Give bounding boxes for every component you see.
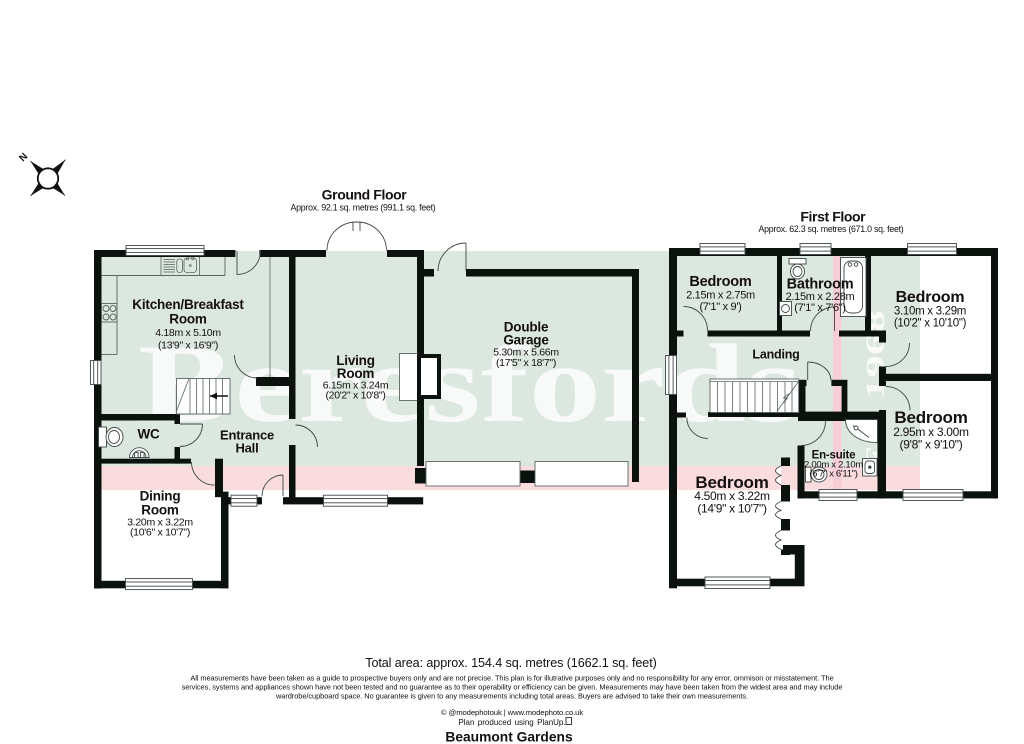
- svg-text:Landing: Landing: [752, 348, 799, 362]
- svg-text:(17'5" x 18'7"): (17'5" x 18'7"): [496, 357, 556, 369]
- svg-text:Approx. 62.3 sq. metres (671.0: Approx. 62.3 sq. metres (671.0 sq. feet): [758, 224, 903, 234]
- svg-text:Ground Floor: Ground Floor: [322, 187, 408, 203]
- svg-text:Room: Room: [169, 312, 207, 327]
- svg-text:Bedroom: Bedroom: [689, 274, 751, 290]
- svg-text:First Floor: First Floor: [800, 209, 866, 225]
- svg-text:(7'1" x 9'): (7'1" x 9'): [699, 301, 741, 313]
- svg-text:Hall: Hall: [235, 441, 258, 456]
- svg-text:Dining: Dining: [140, 489, 181, 504]
- svg-text:(13'9" x 16'9"): (13'9" x 16'9"): [158, 340, 218, 352]
- svg-text:(10'6" x 10'7"): (10'6" x 10'7"): [130, 527, 190, 539]
- svg-text:3.10m x 3.29m: 3.10m x 3.29m: [894, 306, 966, 318]
- svg-text:(14'9" x 10'7"): (14'9" x 10'7"): [697, 502, 767, 516]
- svg-text:4.18m x 5.10m: 4.18m x 5.10m: [155, 327, 221, 339]
- svg-text:(7'1" x 7'6"): (7'1" x 7'6"): [794, 302, 846, 314]
- svg-text:Kitchen/Breakfast: Kitchen/Breakfast: [132, 297, 244, 312]
- svg-text:(6'7" x 6'11"): (6'7" x 6'11"): [809, 469, 857, 480]
- svg-text:Plan produced using PlanUp.: Plan produced using PlanUp.: [458, 718, 565, 727]
- svg-text:Room: Room: [141, 503, 179, 518]
- svg-text:Beaumont Gardens: Beaumont Gardens: [445, 730, 573, 744]
- svg-text:(9'8" x 9'10"): (9'8" x 9'10"): [900, 438, 963, 452]
- svg-text:(10'2" x 10'10"): (10'2" x 10'10"): [894, 318, 967, 330]
- svg-text:wardrobe/cupboard space. No gu: wardrobe/cupboard space. No guarantee is…: [275, 692, 748, 701]
- svg-text:© @modephotouk | www.modephoto: © @modephotouk | www.modephoto.co.uk: [441, 708, 583, 717]
- svg-text:Garage: Garage: [503, 333, 549, 348]
- svg-text:WC: WC: [137, 427, 160, 442]
- svg-text:Approx. 92.1 sq. metres (991.1: Approx. 92.1 sq. metres (991.1 sq. feet): [290, 203, 435, 213]
- svg-text:2.15m x 2.75m: 2.15m x 2.75m: [686, 290, 755, 302]
- svg-text:services, systems and applianc: services, systems and appliances shown h…: [182, 683, 843, 692]
- svg-text:Bedroom: Bedroom: [896, 289, 965, 306]
- svg-text:(20'2" x 10'8"): (20'2" x 10'8"): [325, 390, 385, 402]
- svg-text:All measurements have been tak: All measurements have been taken as a gu…: [190, 674, 833, 683]
- svg-text:Total area: approx. 154.4 sq.: Total area: approx. 154.4 sq. metres (16…: [365, 656, 656, 670]
